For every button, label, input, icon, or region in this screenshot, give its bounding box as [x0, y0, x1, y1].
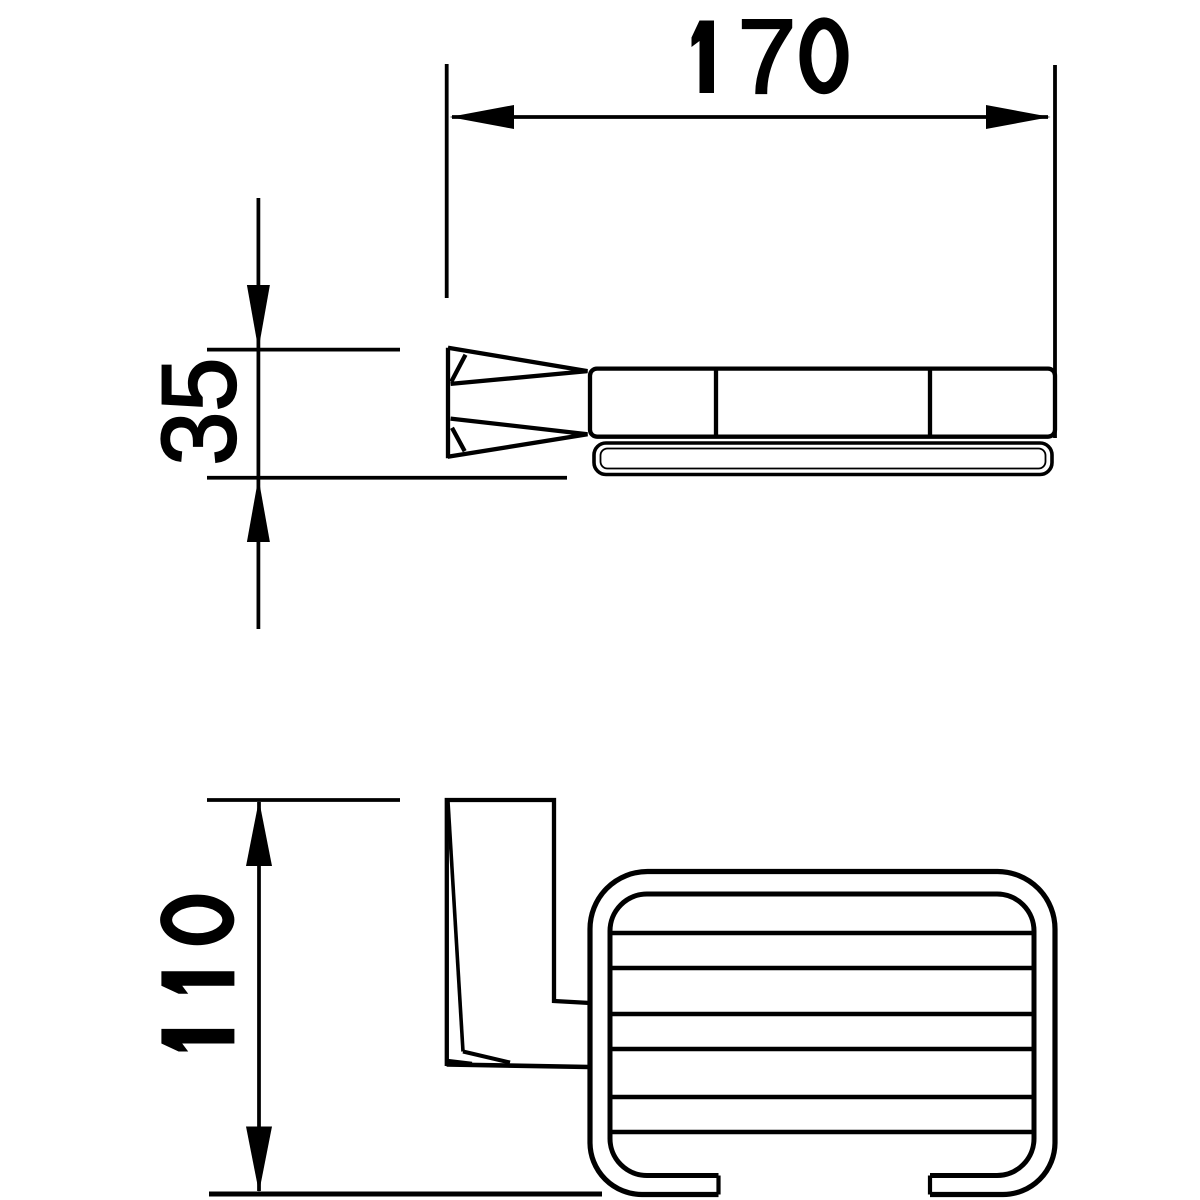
svg-text:7: 7	[738, 0, 797, 116]
svg-text:35: 35	[141, 358, 258, 466]
